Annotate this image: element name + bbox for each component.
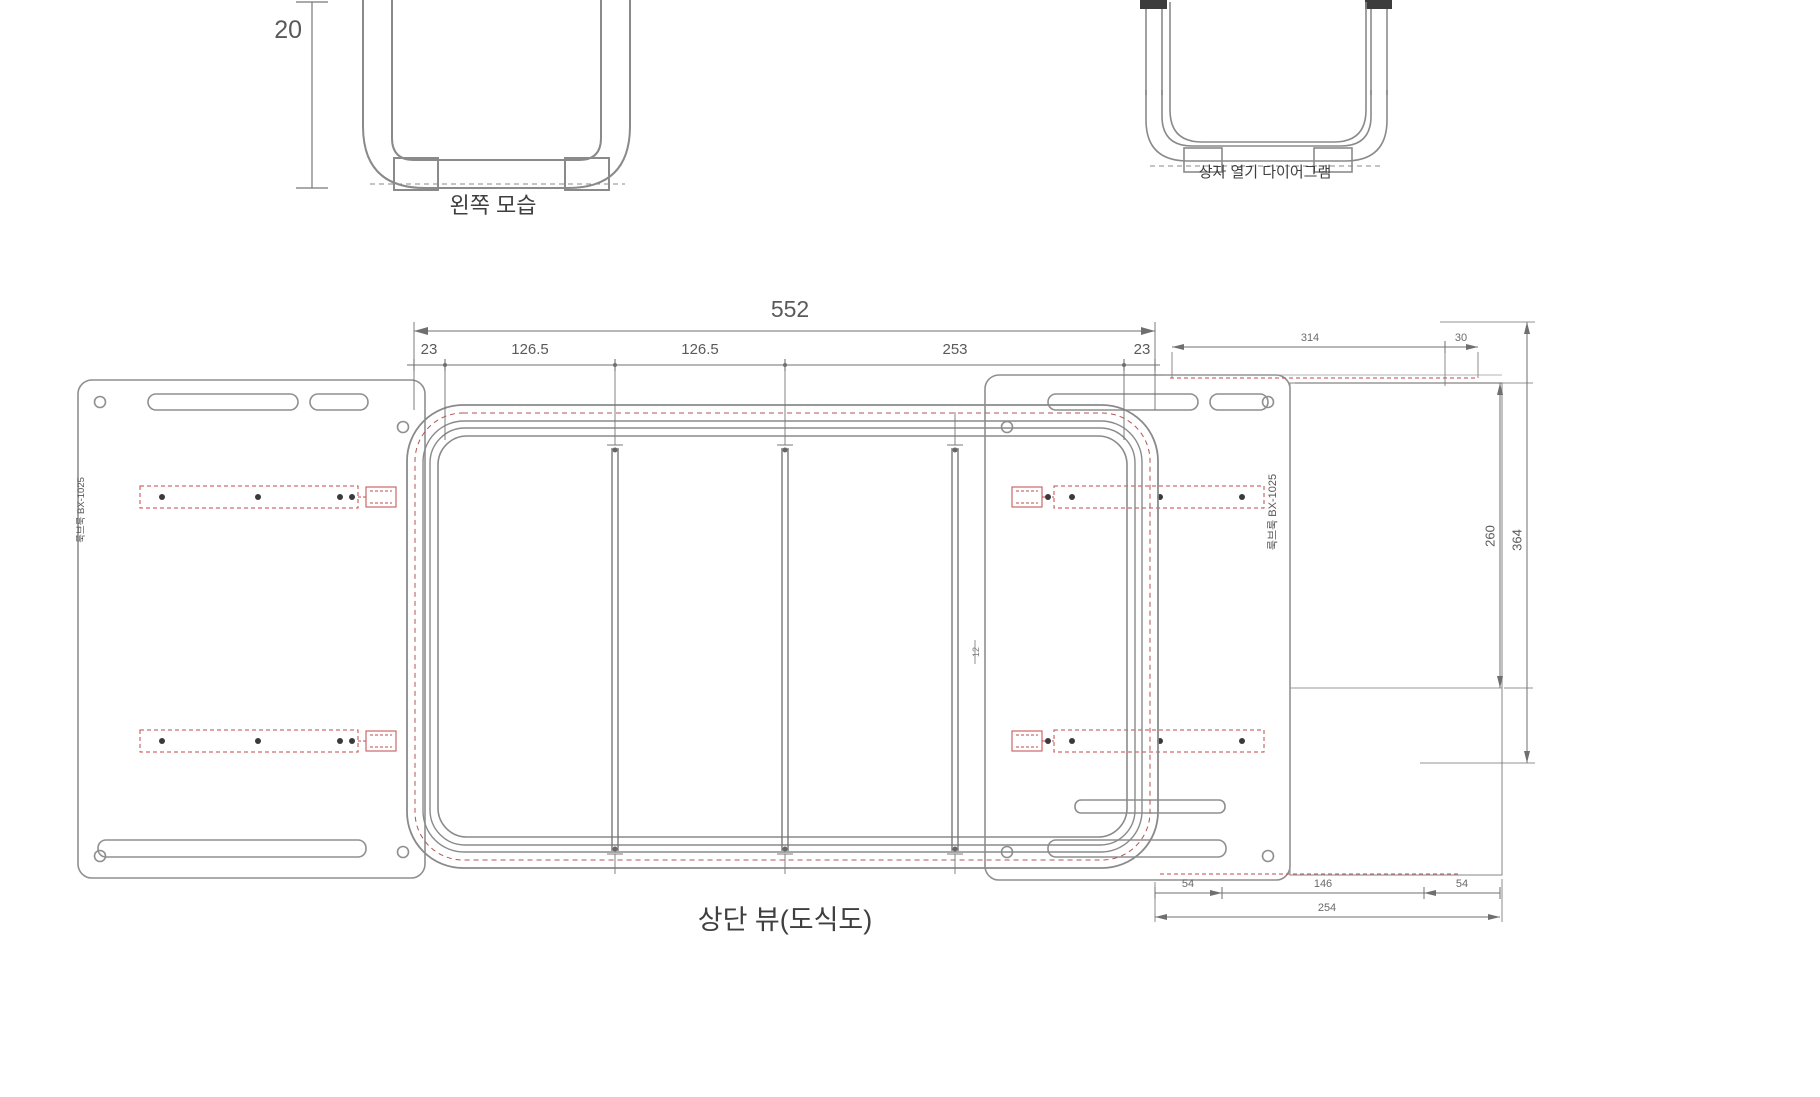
red-strip-outline bbox=[140, 730, 358, 752]
arrow-up bbox=[1524, 322, 1530, 334]
strip-top-dots bbox=[159, 494, 355, 500]
rivet-dot bbox=[255, 494, 261, 500]
rivet-dot bbox=[1239, 494, 1245, 500]
rivet-dot bbox=[337, 494, 343, 500]
dim-seg-23-left: 23 bbox=[421, 341, 438, 358]
dim-seg-23-right: 23 bbox=[1134, 341, 1151, 358]
drawing-linework bbox=[0, 0, 1820, 1097]
dim-254-label: 254 bbox=[1318, 902, 1336, 914]
right-panel-body bbox=[985, 375, 1290, 880]
rivet-dot bbox=[1045, 494, 1051, 500]
red-connector bbox=[366, 731, 396, 751]
left-view-inner-tube bbox=[392, 0, 601, 160]
dim-20-label: 20 bbox=[246, 16, 302, 45]
red-strip-top bbox=[140, 486, 396, 508]
right-panel-part-label: 룩브룩 BX-1025 bbox=[1264, 474, 1280, 550]
dim-seg-253: 253 bbox=[942, 341, 967, 358]
right-panel-hole-br bbox=[1263, 851, 1274, 862]
red-connector bbox=[1012, 731, 1042, 751]
left-view-frame bbox=[363, 0, 630, 190]
dim-seg-126-1: 126.5 bbox=[511, 341, 549, 358]
arrow bbox=[1424, 890, 1436, 896]
red-connector bbox=[366, 487, 396, 507]
technical-drawing-page: 20 왼쪽 모습 상자 열기 다이어그램 552 23 126.5 126.5 … bbox=[0, 0, 1820, 1097]
divider-1 bbox=[612, 448, 618, 851]
left-panel-hole-br bbox=[398, 847, 409, 858]
right-panel-slot-top-2 bbox=[1210, 394, 1268, 410]
red-strip-outline bbox=[140, 486, 358, 508]
divider-2 bbox=[782, 448, 788, 851]
dim-260-label: 260 bbox=[1483, 525, 1498, 547]
slide-out-outline bbox=[1290, 383, 1502, 875]
left-view-foot-right bbox=[565, 158, 609, 190]
open-diagram-frame bbox=[1140, 0, 1392, 172]
arrow-down bbox=[1524, 751, 1530, 763]
right-vertical-dims bbox=[1295, 322, 1535, 763]
dim-314-label: 314 bbox=[1301, 332, 1319, 344]
rivet-dot bbox=[1069, 738, 1075, 744]
strip-bottom-dots bbox=[1045, 738, 1245, 744]
strip-top-dots bbox=[1045, 494, 1245, 500]
right-panel-slot-top-1 bbox=[1048, 394, 1198, 410]
rivet-dot bbox=[1069, 494, 1075, 500]
rivet-dot bbox=[349, 738, 355, 744]
left-panel-part-label: 룩브룩 BX-1025 bbox=[73, 477, 87, 543]
left-panel-slot-top-2 bbox=[310, 394, 368, 410]
rivet-dot bbox=[159, 494, 165, 500]
open-outer-tube bbox=[1146, 90, 1387, 161]
open-diagram-caption: 상자 열기 다이어그램 bbox=[1199, 161, 1332, 182]
arrow-left bbox=[1155, 914, 1167, 920]
rivet-dot bbox=[1045, 738, 1051, 744]
strip-bottom-dots bbox=[159, 738, 355, 744]
open-body-outline bbox=[1170, 2, 1366, 142]
arrow-right bbox=[1488, 914, 1500, 920]
right-panel bbox=[985, 375, 1290, 880]
divider-extension-lines-top bbox=[615, 362, 955, 445]
left-panel-red-strips bbox=[140, 486, 396, 752]
arrow-left bbox=[414, 327, 428, 335]
arrow-right bbox=[1466, 344, 1478, 350]
slide-out-plate bbox=[1290, 383, 1502, 875]
red-connector bbox=[1012, 487, 1042, 507]
box-dividers bbox=[607, 362, 963, 874]
rivet-dot bbox=[1239, 738, 1245, 744]
left-panel-slot-bottom bbox=[98, 840, 366, 857]
post-left-cap bbox=[1140, 0, 1167, 9]
top-view-caption: 상단 뷰(도식도) bbox=[698, 898, 873, 937]
arrow bbox=[1210, 890, 1222, 896]
post-right-cap bbox=[1365, 0, 1392, 9]
rivet-dot bbox=[159, 738, 165, 744]
dim-seg-126-2: 126.5 bbox=[681, 341, 719, 358]
rivet-dot bbox=[337, 738, 343, 744]
left-panel-hole-tl bbox=[95, 397, 106, 408]
arrow-left bbox=[1172, 344, 1184, 350]
left-view-caption: 왼쪽 모습 bbox=[449, 188, 536, 220]
right-panel-hole-tl bbox=[1002, 422, 1013, 433]
divider-3 bbox=[952, 448, 958, 851]
left-panel-slot-top-1 bbox=[148, 394, 298, 410]
divider-end-dots bbox=[613, 448, 958, 852]
right-top-dims bbox=[1163, 341, 1502, 386]
dim-54-left-label: 54 bbox=[1182, 878, 1194, 890]
dim-552-label: 552 bbox=[771, 296, 809, 323]
dim-364-label: 364 bbox=[1510, 529, 1525, 551]
left-panel-hole-tr bbox=[398, 422, 409, 433]
open-inner-tube bbox=[1162, 90, 1371, 146]
red-connector-dashes bbox=[358, 491, 392, 503]
red-strip-bottom bbox=[140, 730, 396, 752]
left-panel-body bbox=[78, 380, 425, 878]
dim-54-right-label: 54 bbox=[1456, 878, 1468, 890]
divider-extension-lines-bottom bbox=[615, 854, 955, 874]
rivet-dot bbox=[349, 494, 355, 500]
right-panel-slot-bottom bbox=[1048, 840, 1226, 857]
arrow-right bbox=[1141, 327, 1155, 335]
left-panel bbox=[78, 380, 425, 878]
dim-30-label: 30 bbox=[1455, 332, 1467, 344]
red-connector-dashes bbox=[358, 735, 392, 747]
inner-dim-12-label: 12 bbox=[971, 647, 981, 657]
rivet-dot bbox=[255, 738, 261, 744]
dim-146-label: 146 bbox=[1314, 878, 1332, 890]
